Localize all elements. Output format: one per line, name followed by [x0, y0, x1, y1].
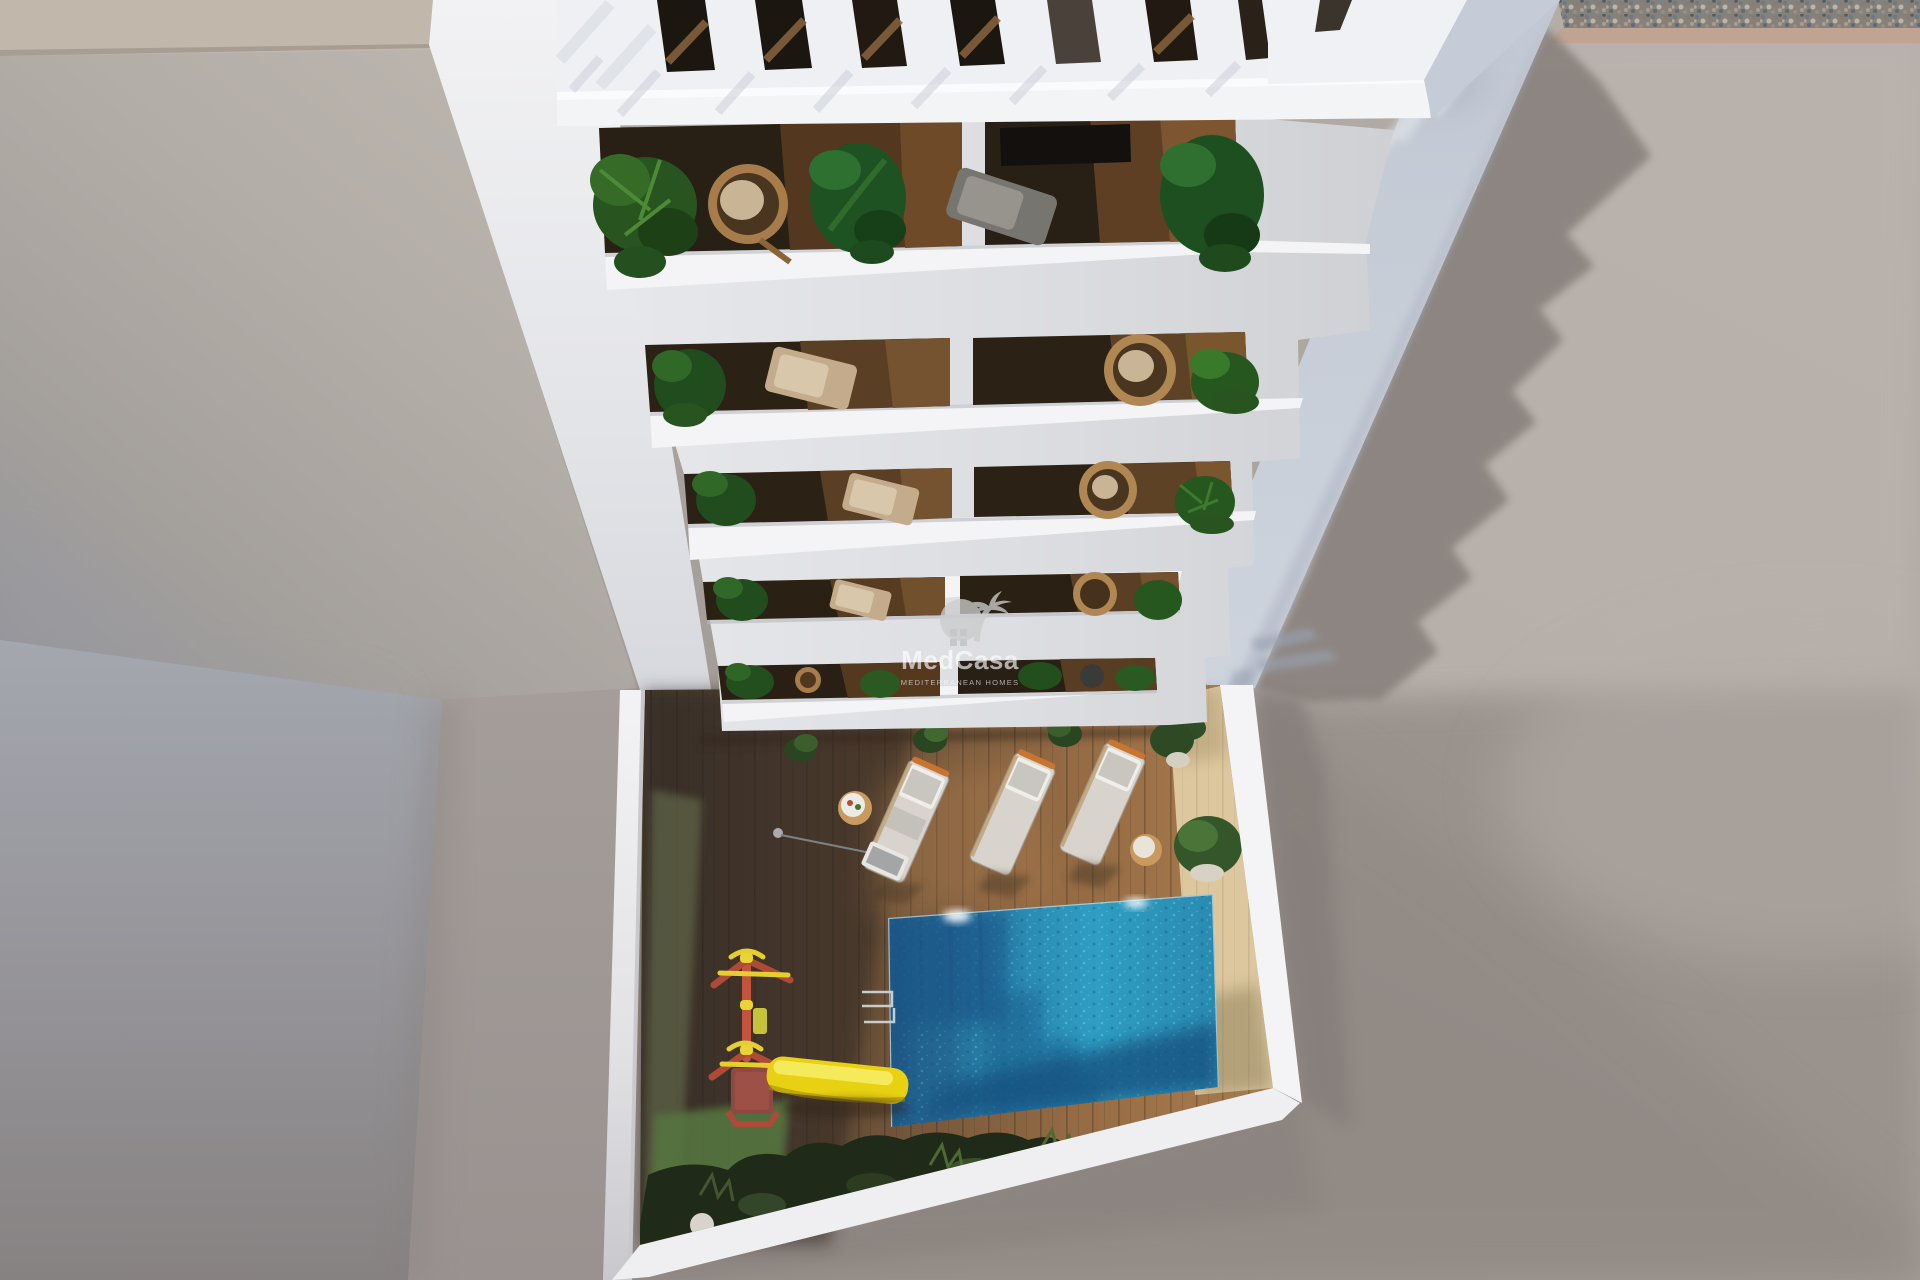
svg-text:MedCasa: MedCasa: [901, 645, 1019, 675]
svg-text:MEDITERRANEAN HOMES: MEDITERRANEAN HOMES: [901, 678, 1020, 687]
